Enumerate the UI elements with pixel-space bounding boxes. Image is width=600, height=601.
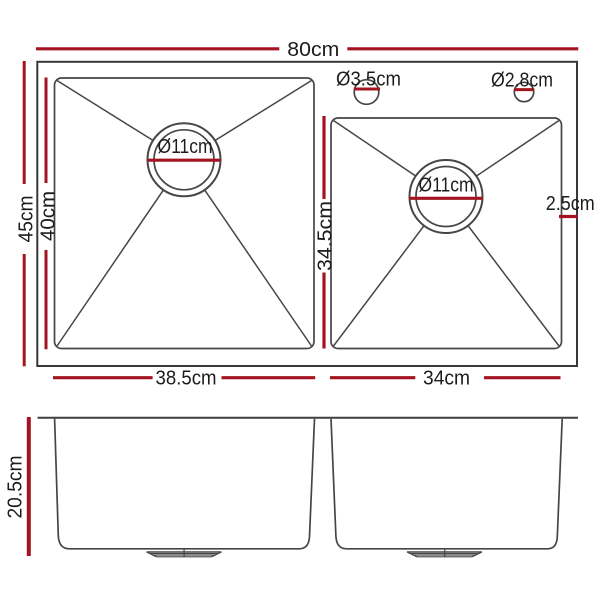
svg-text:45cm: 45cm [15, 196, 37, 243]
svg-text:Ø3.5cm: Ø3.5cm [336, 69, 401, 91]
svg-text:40cm: 40cm [37, 191, 59, 241]
svg-text:Ø11cm: Ø11cm [419, 174, 474, 196]
svg-text:Ø2.8cm: Ø2.8cm [491, 70, 553, 92]
svg-text:34.5cm: 34.5cm [314, 201, 336, 271]
svg-text:20.5cm: 20.5cm [4, 456, 26, 519]
svg-text:80cm: 80cm [287, 39, 339, 61]
svg-text:34cm: 34cm [423, 368, 470, 390]
svg-text:Ø11cm: Ø11cm [158, 136, 213, 158]
svg-text:2.5cm: 2.5cm [546, 193, 595, 215]
svg-text:38.5cm: 38.5cm [156, 368, 217, 390]
